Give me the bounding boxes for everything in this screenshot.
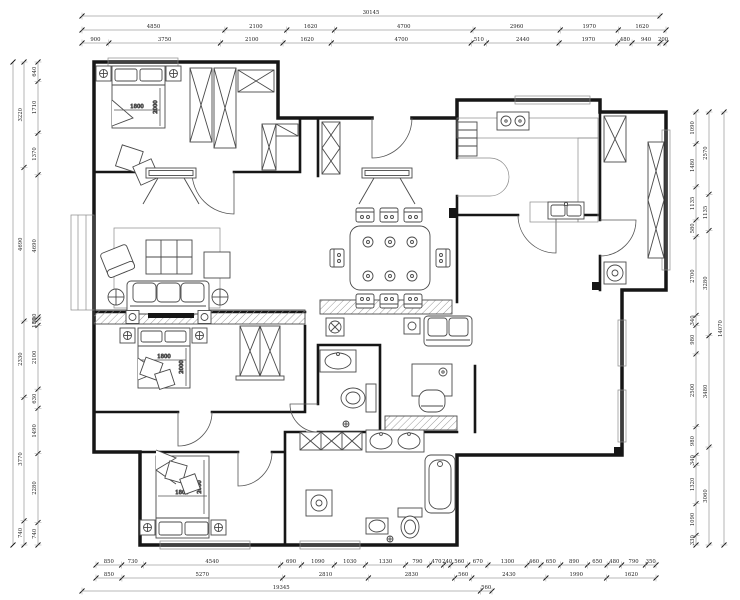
svg-text:4700: 4700 [395,37,409,43]
dim-chain-left-inner: 640171013704690100180210063014902280740 [32,60,42,548]
svg-text:1090: 1090 [690,512,696,526]
bed-dim-label: 2000 [153,100,159,114]
nightstand-lamp-icon [96,66,111,81]
door-master [192,172,234,214]
side-table [204,252,230,278]
dining-chair [330,249,344,267]
svg-text:4540: 4540 [205,559,219,565]
svg-text:560: 560 [458,572,469,578]
window-right-1 [618,320,626,366]
svg-text:630: 630 [32,393,38,404]
svg-text:650: 650 [546,559,557,565]
svg-text:2100: 2100 [249,24,263,30]
dim-chain-right-outer: 25701135328034803060 [703,110,713,548]
svg-text:2810: 2810 [319,572,333,578]
svg-text:4700: 4700 [397,24,411,30]
svg-text:580: 580 [690,223,696,234]
svg-text:560: 560 [454,559,465,565]
door-bed3 [238,452,272,486]
dining-chair [380,208,398,222]
svg-text:3060: 3060 [703,489,709,503]
toilet [398,508,422,538]
svg-text:2700: 2700 [690,269,696,283]
dim-chain-top-row1: 4850210016204700296019701620 [80,24,669,33]
svg-text:14070: 14070 [718,319,724,336]
coffee-table [146,240,192,274]
dim-chain-bottom-overall: 19345560 [80,585,495,594]
floor-drain [387,536,393,542]
washing-machine [604,262,626,284]
kitchen-sink [548,202,584,219]
bed-dim-label: 1800 [157,354,171,360]
svg-text:1320: 1320 [690,477,696,491]
sofa [127,281,209,314]
svg-text:2500: 2500 [690,383,696,397]
svg-text:2280: 2280 [32,481,38,495]
left-reference-line [11,60,16,548]
dining-chair [380,294,398,308]
bathroom-2 [320,350,376,427]
svg-text:3220: 3220 [18,107,24,121]
bookshelf [385,416,457,430]
svg-text:340: 340 [690,315,696,326]
svg-text:480: 480 [609,559,620,565]
svg-text:1480: 1480 [690,158,696,172]
svg-text:2330: 2330 [18,352,24,366]
svg-text:330: 330 [690,535,696,546]
svg-text:2440: 2440 [516,37,530,43]
dim-chain-right-inner: 1090148011355802700340980250098034013201… [690,110,700,548]
dining-chair [404,208,422,222]
svg-text:640: 640 [32,66,38,77]
dim-chain-top-overall: 30145 [80,10,663,19]
nightstand-lamp-icon [140,520,155,535]
living-room [100,228,230,324]
svg-text:30145: 30145 [363,10,380,16]
tv-icon [148,313,194,318]
svg-text:850: 850 [104,559,115,565]
svg-text:1710: 1710 [32,100,38,114]
cabinet [648,142,664,258]
nightstand-lamp-icon [120,328,135,343]
nightstand-lamp-icon [211,520,226,535]
svg-text:340: 340 [690,455,696,466]
svg-text:2830: 2830 [405,572,419,578]
dim-chain-bottom-row1: 8507304540690109010301330790470240560670… [94,559,659,568]
window-master [108,58,178,66]
svg-text:1490: 1490 [32,423,38,437]
bed: 1800 2000 [156,450,209,538]
fridge [458,122,477,156]
svg-text:240: 240 [442,559,453,565]
svg-text:1370: 1370 [32,147,38,161]
dining-room [330,208,450,308]
svg-text:790: 790 [628,559,639,565]
svg-text:670: 670 [473,559,484,565]
svg-text:730: 730 [128,559,139,565]
window-bed3 [160,541,250,549]
dim-chain-left-outer: 3220469023303770740 [18,60,28,548]
nightstand-lamp-icon [192,328,207,343]
svg-text:3750: 3750 [158,37,172,43]
svg-text:19345: 19345 [273,585,290,591]
svg-text:3280: 3280 [703,276,709,290]
svg-text:1030: 1030 [343,559,357,565]
wardrobe [190,68,274,148]
svg-text:850: 850 [104,572,115,578]
svg-text:1330: 1330 [379,559,393,565]
svg-text:740: 740 [32,528,38,539]
washing-machine [306,490,332,516]
svg-text:460: 460 [529,559,540,565]
svg-text:510: 510 [474,37,485,43]
svg-text:1970: 1970 [583,24,597,30]
bed-dim-label: 2000 [179,360,185,374]
toilet [341,384,376,412]
floor-drain [343,421,349,427]
ac-unit [143,168,199,204]
loveseat [424,316,472,346]
svg-text:4850: 4850 [147,24,161,30]
svg-text:2430: 2430 [502,572,516,578]
bathtub [425,455,455,513]
master-bedroom: 1800 2000 [96,66,274,204]
svg-text:1090: 1090 [690,121,696,135]
balcony [604,116,664,284]
svg-text:1090: 1090 [311,559,325,565]
small-sink [366,518,388,534]
svg-text:1990: 1990 [569,572,583,578]
svg-text:980: 980 [690,435,696,446]
svg-text:740: 740 [18,527,24,538]
nightstand-lamp-icon [166,66,181,81]
column [592,282,600,290]
svg-text:2100: 2100 [32,350,38,364]
floor-lamp-icon [212,289,228,305]
svg-text:350: 350 [646,559,657,565]
window-kitchen [515,96,590,104]
svg-text:900: 900 [90,37,101,43]
svg-text:650: 650 [592,559,603,565]
dim-chain-top-row2: 900375021001620470051024401970480940200 [80,37,669,46]
window-bath3 [300,541,360,549]
svg-text:5270: 5270 [196,572,210,578]
shoe-cabinet [322,122,340,174]
cloakroom-closet [262,124,298,170]
dining-chair [436,249,450,267]
door-kitchen [518,215,556,253]
floor-plan-page: 1800 2000 [0,0,740,600]
bedroom-3: 1800 2000 [140,450,226,538]
svg-text:560: 560 [481,585,492,591]
svg-text:980: 980 [690,334,696,345]
desk-chair [419,390,445,412]
entry-hall [322,122,415,204]
study [326,316,472,430]
bed-dim-label: 1800 [130,104,144,110]
svg-text:3480: 3480 [703,384,709,398]
floor-lamp-icon [108,289,124,305]
kitchen [457,112,598,222]
svg-text:3770: 3770 [18,452,24,466]
dim-chain-bottom-row2: 850527028102830560243019901620 [94,572,659,581]
svg-text:1620: 1620 [304,24,318,30]
bedroom-2: 1800 2000 [120,326,284,389]
svg-text:1620: 1620 [625,572,639,578]
double-vanity [366,430,424,452]
svg-text:1620: 1620 [635,24,649,30]
svg-text:1135: 1135 [690,197,696,210]
window-right-2 [618,390,626,442]
cabinet [604,116,626,162]
floor-plan-canvas: 1800 2000 [0,0,740,600]
door-balcony [600,220,636,256]
svg-text:4690: 4690 [18,237,24,251]
master-bed: 1800 2000 [112,66,165,128]
lamp-table [404,318,420,334]
bay-window [71,215,94,310]
svg-text:1300: 1300 [501,559,515,565]
armchair [100,244,136,279]
dining-chair [356,208,374,222]
svg-text:4690: 4690 [32,239,38,253]
cooktop [497,112,529,130]
dining-chair [404,294,422,308]
column [449,208,457,218]
svg-text:480: 480 [620,37,631,43]
svg-text:790: 790 [412,559,423,565]
bathroom-3 [300,430,455,542]
svg-text:2100: 2100 [245,37,259,43]
dining-chair [356,294,374,308]
dim-chain-right-overall: 14070 [718,110,728,548]
wardrobe [236,326,284,380]
svg-text:690: 690 [286,559,297,565]
svg-text:940: 940 [641,37,652,43]
column [614,447,622,455]
svg-text:2960: 2960 [510,24,524,30]
cabinet [300,432,362,450]
ac-unit [359,168,415,204]
water-heater [326,318,344,336]
svg-text:890: 890 [569,559,580,565]
clothes-pile [115,145,159,185]
bathroom-sink [320,350,356,372]
svg-text:1135: 1135 [703,206,709,219]
svg-text:200: 200 [658,37,669,43]
svg-text:2570: 2570 [703,146,709,160]
svg-text:1970: 1970 [582,37,596,43]
svg-text:1620: 1620 [300,37,314,43]
door-entry [372,118,412,158]
svg-text:180: 180 [32,317,38,328]
door-bed2 [178,412,212,446]
svg-text:470: 470 [431,559,442,565]
